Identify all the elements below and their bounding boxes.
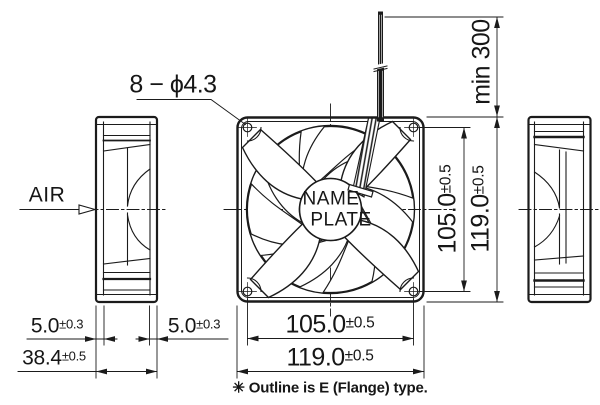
nameplate-line2: PLATE bbox=[310, 211, 371, 230]
lead-wires bbox=[374, 14, 387, 118]
holes-callout-label: 8 − ϕ4.3 bbox=[129, 73, 216, 98]
mount-pitch-horizontal-label: 105.0±0.5 bbox=[286, 313, 375, 338]
nameplate-line1: NAME bbox=[303, 190, 360, 209]
flange-depth-left-label: 5.0±0.3 bbox=[31, 316, 83, 337]
fan-outline-drawing: 8 − ϕ4.3 AIR min 300 105.0±0.5 119.0±0.5… bbox=[0, 0, 600, 405]
frame-depth-label: 38.4±0.5 bbox=[22, 348, 86, 369]
air-label: AIR bbox=[29, 185, 66, 206]
holes-callout-leader bbox=[137, 100, 246, 125]
mount-pitch-vertical-label: 105.0±0.5 bbox=[436, 165, 461, 254]
lead-wire-length-label: min 300 bbox=[470, 19, 495, 104]
frame-width-label: 119.0±0.5 bbox=[286, 346, 373, 371]
flange-depth-right-label: 5.0±0.3 bbox=[168, 316, 220, 337]
frame-height-label: 119.0±0.5 bbox=[469, 165, 494, 252]
footnote: ✳ Outline is E (Flange) type. bbox=[232, 381, 427, 396]
